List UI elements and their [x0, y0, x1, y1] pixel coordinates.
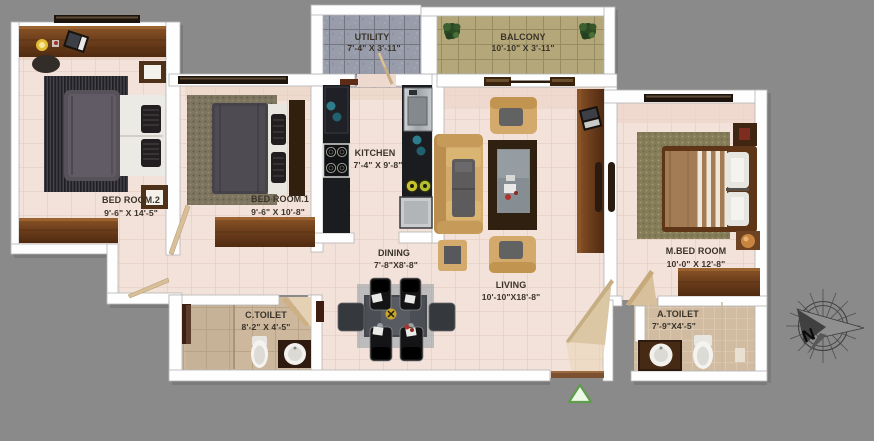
svg-text:KITCHEN: KITCHEN: [355, 148, 396, 158]
svg-text:C.TOILET: C.TOILET: [245, 310, 287, 320]
svg-text:9'-6" X 10'-8": 9'-6" X 10'-8": [251, 207, 305, 217]
svg-text:BALCONY: BALCONY: [500, 32, 545, 42]
svg-text:10'-0" X 12'-8": 10'-0" X 12'-8": [667, 259, 726, 269]
svg-text:A.TOILET: A.TOILET: [657, 309, 699, 319]
svg-text:BED ROOM.2: BED ROOM.2: [102, 195, 160, 205]
svg-text:10'-10"X18'-8": 10'-10"X18'-8": [482, 292, 541, 302]
svg-text:9'-6" X 14'-5": 9'-6" X 14'-5": [104, 208, 158, 218]
svg-text:10'-10" X 3'-11": 10'-10" X 3'-11": [491, 43, 554, 53]
svg-text:7'-9"X4'-5": 7'-9"X4'-5": [652, 321, 696, 331]
svg-text:7'-4" X 3'-11": 7'-4" X 3'-11": [347, 43, 400, 53]
svg-text:DINING: DINING: [378, 248, 410, 258]
svg-text:LIVING: LIVING: [496, 280, 527, 290]
svg-text:7'-8"X8'-8": 7'-8"X8'-8": [374, 260, 418, 270]
svg-text:8'-2" X 4'-5": 8'-2" X 4'-5": [242, 322, 291, 332]
svg-text:M.BED ROOM: M.BED ROOM: [666, 246, 727, 256]
svg-text:UTILITY: UTILITY: [355, 32, 390, 42]
svg-text:BED ROOM.1: BED ROOM.1: [251, 194, 309, 204]
svg-text:7'-4" X 9'-8": 7'-4" X 9'-8": [354, 160, 403, 170]
